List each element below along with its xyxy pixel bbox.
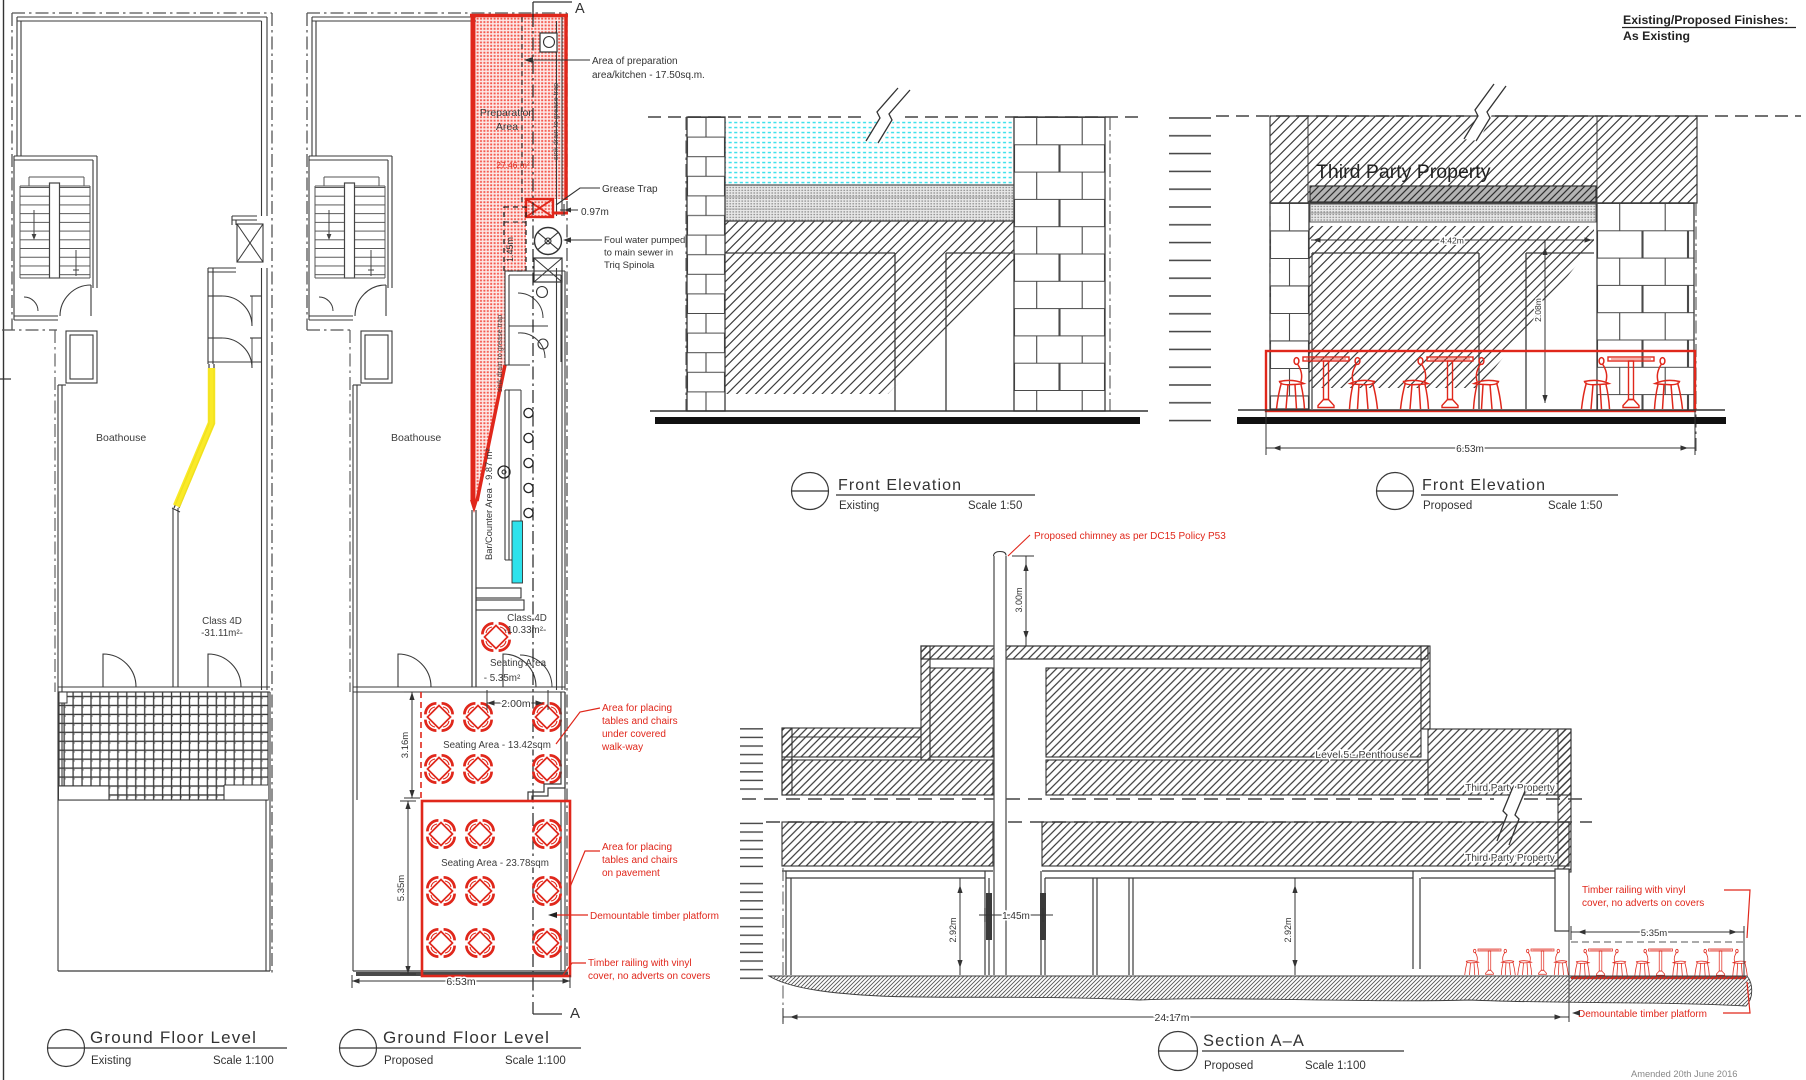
svg-text:Scale 1:100: Scale 1:100 <box>505 1055 566 1067</box>
svg-text:-10.33m²-: -10.33m²- <box>504 625 546 636</box>
svg-text:5.35m: 5.35m <box>396 875 407 901</box>
svg-text:Area for placing: Area for placing <box>602 703 672 714</box>
svg-text:0.97m: 0.97m <box>581 207 609 218</box>
svg-text:under covered: under covered <box>602 729 666 740</box>
svg-text:2.08m: 2.08m <box>1533 298 1543 322</box>
svg-text:tables and chairs: tables and chairs <box>602 855 678 866</box>
svg-text:walk-way: walk-way <box>601 742 643 753</box>
svg-text:cover, no adverts on covers: cover, no adverts on covers <box>1582 898 1704 909</box>
svg-text:Amended 20th June 2016: Amended 20th June 2016 <box>1631 1069 1737 1079</box>
svg-text:Bar/Counter Area - 9.87 m²: Bar/Counter Area - 9.87 m² <box>484 448 494 560</box>
svg-text:Demountable timber platform: Demountable timber platform <box>590 911 719 922</box>
svg-text:Scale 1:50: Scale 1:50 <box>968 500 1022 512</box>
svg-text:-31.11m²-: -31.11m²- <box>201 628 243 639</box>
svg-text:tables and chairs: tables and chairs <box>602 716 678 727</box>
svg-text:Seating Area - 23.78sqm: Seating Area - 23.78sqm <box>441 858 549 869</box>
svg-text:3.00m: 3.00m <box>1014 587 1024 612</box>
svg-text:Timber railing with vinyl: Timber railing with vinyl <box>1582 885 1686 896</box>
svg-text:Proposed: Proposed <box>1204 1060 1253 1072</box>
svg-text:Front Elevation: Front Elevation <box>838 477 962 494</box>
svg-text:Third Party Property: Third Party Property <box>1465 783 1554 794</box>
svg-text:Preparation: Preparation <box>480 107 534 119</box>
svg-text:Scale 1:100: Scale 1:100 <box>1305 1060 1366 1072</box>
svg-text:24.17m: 24.17m <box>1154 1012 1189 1024</box>
svg-text:2.92m: 2.92m <box>948 917 958 942</box>
svg-text:cover, no adverts on covers: cover, no adverts on covers <box>588 971 710 982</box>
svg-text:Scale 1:100: Scale 1:100 <box>213 1055 274 1067</box>
svg-text:Existing/Proposed Finishes:: Existing/Proposed Finishes: <box>1623 13 1788 27</box>
svg-text:area/kitchen - 17.50sq.m.: area/kitchen - 17.50sq.m. <box>592 70 705 81</box>
svg-text:Proposed: Proposed <box>1423 500 1472 512</box>
svg-text:Area of preparation: Area of preparation <box>592 56 678 67</box>
svg-text:Front Elevation: Front Elevation <box>1422 477 1546 494</box>
svg-text:2.92m: 2.92m <box>1283 917 1293 942</box>
svg-text:Section A–A: Section A–A <box>1203 1032 1305 1050</box>
svg-text:Boathouse: Boathouse <box>391 432 441 444</box>
svg-text:Proposed: Proposed <box>384 1055 433 1067</box>
svg-text:Demountable timber platform: Demountable timber platform <box>1578 1009 1707 1020</box>
svg-text:1.45m: 1.45m <box>1002 911 1030 922</box>
svg-text:Area for placing: Area for placing <box>602 842 672 853</box>
svg-text:sink drain to grease trap: sink drain to grease trap <box>495 315 504 392</box>
svg-text:Area: Area <box>496 121 518 133</box>
svg-text:- 5.35m²: - 5.35m² <box>484 673 521 684</box>
svg-text:Level 5 - Penthouse: Level 5 - Penthouse <box>1315 749 1409 761</box>
svg-text:4.42m: 4.42m <box>1440 236 1464 246</box>
svg-text:Grease Trap: Grease Trap <box>602 184 658 195</box>
svg-text:A: A <box>575 1 585 17</box>
svg-text:2.00m: 2.00m <box>501 698 530 710</box>
svg-text:Ground Floor Level: Ground Floor Level <box>383 1028 550 1047</box>
svg-text:Timber railing with vinyl: Timber railing with vinyl <box>588 958 692 969</box>
svg-text:Seating Area: Seating Area <box>490 658 547 669</box>
svg-text:Third Party Property: Third Party Property <box>1316 161 1491 183</box>
svg-text:3.16m: 3.16m <box>400 732 411 758</box>
svg-text:As Existing: As Existing <box>1623 29 1690 43</box>
svg-text:Class 4D: Class 4D <box>202 616 242 627</box>
svg-text:Triq Spinola: Triq Spinola <box>604 260 655 271</box>
svg-text:sink drain to grease trap: sink drain to grease trap <box>551 83 560 160</box>
svg-text:6.53m: 6.53m <box>1456 444 1484 455</box>
svg-text:1.45m: 1.45m <box>505 237 515 262</box>
svg-text:27.46 m²: 27.46 m² <box>496 160 530 170</box>
svg-text:Ground Floor Level: Ground Floor Level <box>90 1028 257 1047</box>
svg-text:to main sewer in: to main sewer in <box>604 248 673 259</box>
svg-text:Existing: Existing <box>91 1055 131 1067</box>
svg-text:Foul water pumped: Foul water pumped <box>604 235 685 246</box>
svg-text:5.35m: 5.35m <box>1641 928 1667 939</box>
svg-text:6.53m: 6.53m <box>446 976 475 988</box>
svg-text:Third Party Property: Third Party Property <box>1465 853 1554 864</box>
svg-text:A: A <box>570 1005 580 1022</box>
svg-text:Class 4D: Class 4D <box>507 613 547 624</box>
svg-text:Seating Area - 13.42sqm: Seating Area - 13.42sqm <box>443 740 551 751</box>
svg-text:Scale 1:50: Scale 1:50 <box>1548 500 1602 512</box>
svg-text:Boathouse: Boathouse <box>96 432 146 444</box>
svg-text:Existing: Existing <box>839 500 879 512</box>
svg-text:Proposed chimney as per DC15 P: Proposed chimney as per DC15 Policy P53 <box>1034 531 1226 542</box>
svg-text:on pavement: on pavement <box>602 868 660 879</box>
